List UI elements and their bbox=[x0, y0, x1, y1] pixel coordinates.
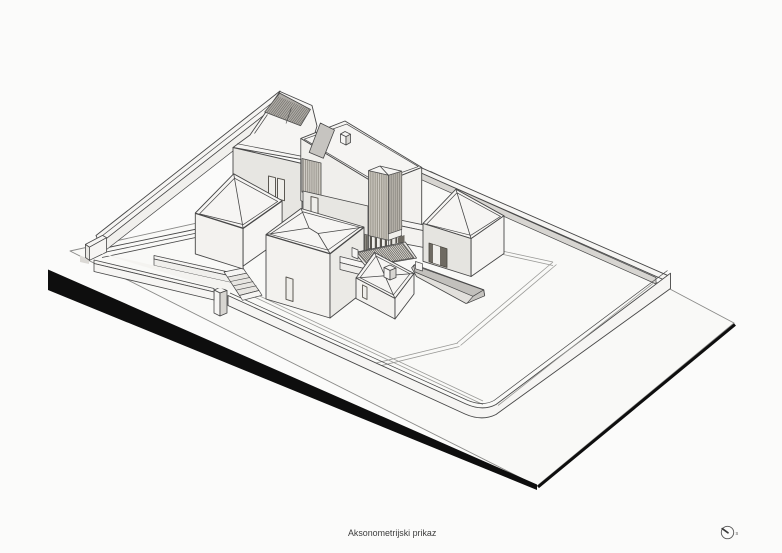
svg-text:s: s bbox=[736, 531, 739, 537]
svg-text:Aksonometrijski prikaz: Aksonometrijski prikaz bbox=[348, 528, 436, 538]
